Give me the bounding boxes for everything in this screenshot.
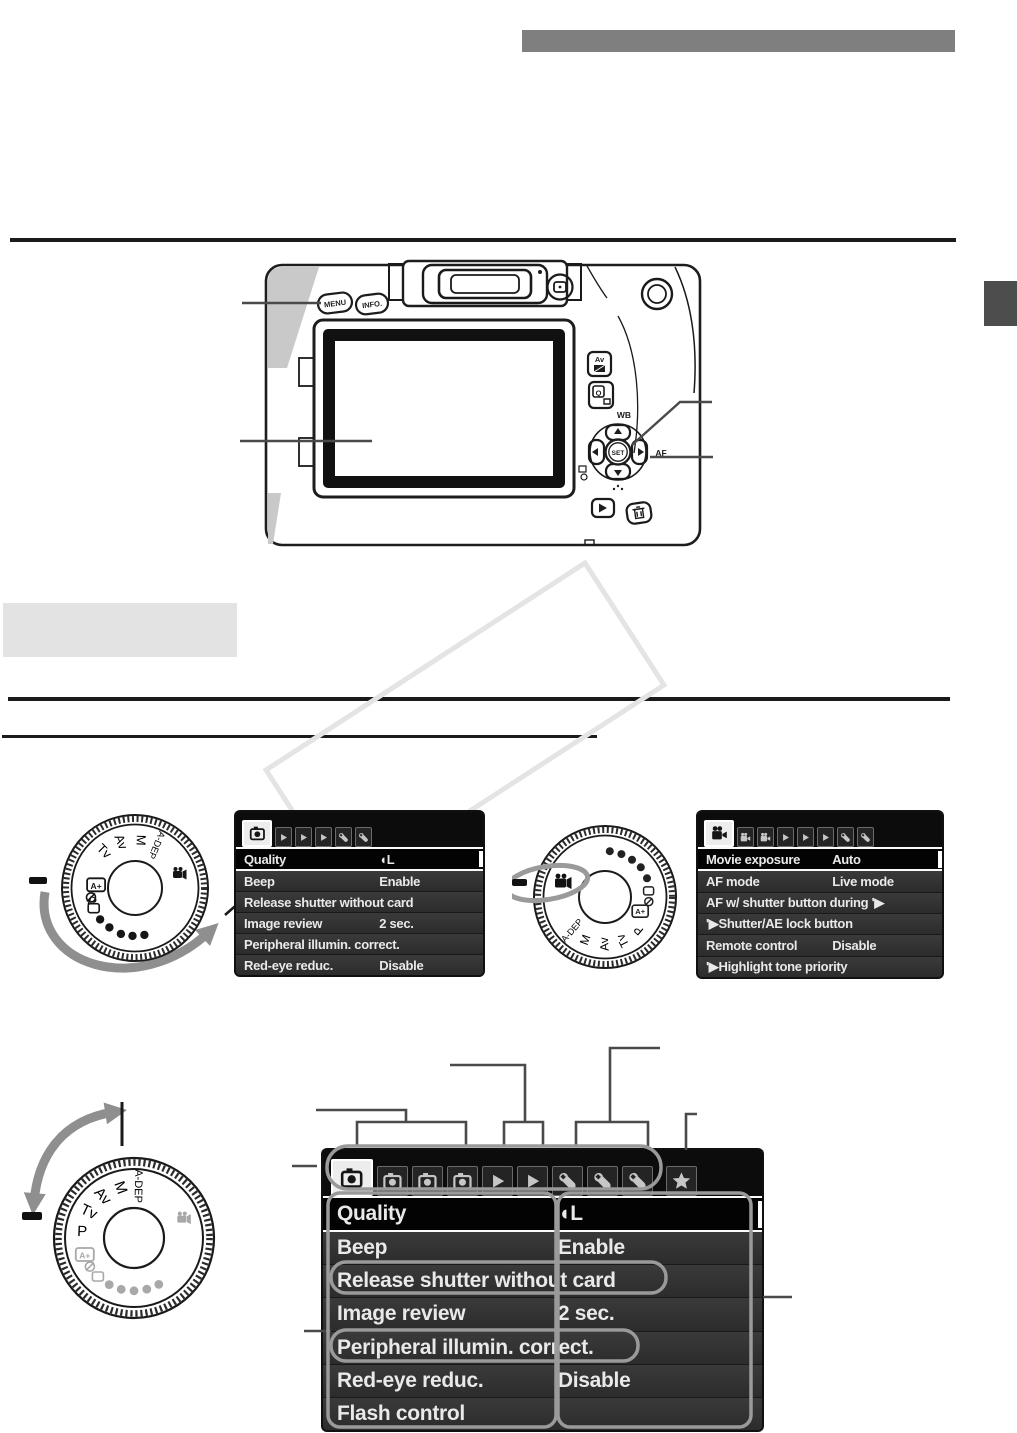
macro-mode-icon (117, 930, 125, 938)
menu-item-value: Enable (379, 874, 420, 889)
menu-tab-bar (236, 812, 483, 847)
svg-text:M: M (134, 834, 149, 845)
menu-tab-playback (315, 827, 332, 847)
svg-text:A+: A+ (79, 1251, 90, 1261)
menu-item-value: ◖L (558, 1202, 583, 1226)
menu-row: '▶Shutter/AE lock button (698, 914, 942, 935)
mode-dial-basic-zone: P Tv Av M A-DEP A+ (25, 793, 257, 1011)
menu-screen-main: Quality◖LBeepEnableRelease shutter witho… (323, 1150, 762, 1430)
svg-text:SET: SET (612, 450, 625, 457)
dial-index-mark (512, 879, 527, 886)
menu-row: Red-eye reduc.Disable (236, 955, 483, 975)
manual-page: MENU INFO. Av (0, 0, 1017, 1433)
menu-item-label: Red-eye reduc. (323, 1369, 483, 1393)
sports-mode-icon (128, 932, 136, 940)
menu-tab-playback (275, 827, 292, 847)
portrait-mode-icon (96, 915, 104, 923)
menu-row: Movie exposureAuto (698, 847, 942, 871)
portrait-mode-icon (643, 874, 651, 882)
menu-row: '▶Highlight tone priority (698, 957, 942, 977)
menu-item-label: Release shutter without card (323, 1269, 616, 1293)
svg-text:Av: Av (595, 355, 605, 364)
menu-item-label: '▶Highlight tone priority (698, 959, 847, 975)
menu-tab-playback (797, 827, 814, 847)
portrait-mode-icon (105, 1280, 114, 1289)
menu-screen-basic-zone: Quality◖LBeepEnableRelease shutter witho… (236, 812, 483, 975)
night-portrait-icon (606, 847, 614, 855)
menu-tab-wrench (335, 827, 352, 847)
menu-item-value: 2 sec. (558, 1302, 615, 1326)
landscape-mode-icon (105, 923, 113, 931)
sports-mode-icon (142, 1285, 151, 1294)
menu-tab-camera (447, 1166, 478, 1196)
menu-item-value: ◖L (379, 852, 394, 867)
lcd-monitor (299, 320, 574, 497)
svg-text:Q: Q (596, 389, 602, 398)
menu-item-label: Beep (236, 874, 275, 889)
menu-tab-playback (482, 1166, 513, 1196)
mode-dial-movie: P Tv Av M A-DEP A+ (512, 810, 710, 990)
menu-row: Peripheral illumin. correct. (323, 1332, 762, 1365)
menu-row: Quality◖L (323, 1196, 762, 1232)
menu-item-value: Enable (558, 1236, 625, 1260)
menu-item-label: Beep (323, 1236, 387, 1260)
macro-mode-icon (130, 1286, 139, 1295)
menu-row: BeepEnable (236, 871, 483, 892)
menu-item-label: Release shutter without card (236, 895, 413, 910)
menu-item-value: Disable (558, 1369, 631, 1393)
menu-row: BeepEnable (323, 1232, 762, 1265)
menu-tab-wrench (587, 1166, 618, 1196)
info-button: INFO. (355, 293, 389, 316)
svg-text:P: P (77, 1223, 88, 1240)
mic-dot (538, 270, 542, 274)
menu-tab-wrench (552, 1166, 583, 1196)
menu-tab-camera-selected (242, 820, 272, 847)
menu-tab-star (666, 1166, 697, 1196)
menu-tab-playback (777, 827, 794, 847)
menu-tab-wrench (622, 1166, 653, 1196)
menu-tab-playback (817, 827, 834, 847)
menu-row: Flash control (323, 1398, 762, 1430)
menu-rows: Quality◖LBeepEnableRelease shutter witho… (323, 1196, 762, 1430)
menu-row: AF modeLive mode (698, 871, 942, 892)
menu-tab-playback (295, 827, 312, 847)
menu-tab-movie-selected (704, 820, 734, 847)
menu-item-label: Peripheral illumin. correct. (323, 1336, 594, 1360)
menu-item-value: Disable (832, 938, 876, 953)
menu-item-label: Image review (323, 1302, 465, 1326)
menu-rows: Movie exposureAutoAF modeLive modeAF w/ … (698, 847, 942, 977)
svg-text:Av: Av (597, 937, 612, 952)
viewfinder (389, 261, 581, 306)
menu-tab-bar (323, 1150, 762, 1196)
night-portrait-icon (154, 1280, 163, 1289)
menu-row: Quality◖L (236, 847, 483, 871)
menu-item-label: Movie exposure (698, 852, 800, 867)
svg-text:A+: A+ (635, 907, 645, 916)
menu-item-label: AF w/ shutter button during '▶ (698, 895, 884, 911)
menu-item-value: Live mode (832, 874, 894, 889)
menu-rows: Quality◖LBeepEnableRelease shutter witho… (236, 847, 483, 975)
menu-screen-movie: Movie exposureAutoAF modeLive modeAF w/ … (698, 812, 942, 977)
menu-item-label: Peripheral illumin. correct. (236, 937, 400, 952)
macro-mode-icon (628, 856, 636, 864)
menu-tab-wrench (355, 827, 372, 847)
menu-item-label: Red-eye reduc. (236, 958, 333, 973)
menu-tab-wrench (837, 827, 854, 847)
menu-row: Release shutter without card (236, 892, 483, 913)
night-portrait-icon (140, 931, 148, 939)
menu-tab-playback (517, 1166, 548, 1196)
menu-item-label: '▶Shutter/AE lock button (698, 916, 853, 932)
menu-item-label: Image review (236, 916, 322, 931)
menu-item-label: Quality (236, 852, 286, 867)
menu-tab-movie (737, 827, 754, 847)
menu-item-label: AF mode (698, 874, 760, 889)
svg-text:A+: A+ (91, 881, 102, 891)
menu-row: Release shutter without card (323, 1265, 762, 1298)
menu-tab-camera-selected (331, 1159, 373, 1196)
menu-button: MENU (317, 291, 353, 314)
menu-tab-camera (412, 1166, 443, 1196)
camera-back-diagram: MENU INFO. Av (235, 258, 725, 558)
menu-item-value: 2 sec. (379, 916, 413, 931)
wb-label: WB (617, 410, 631, 420)
dial-index-mark (22, 1212, 42, 1220)
menu-item-label: Quality (323, 1202, 406, 1226)
menu-row: AF w/ shutter button during '▶ (698, 893, 942, 914)
menu-item-label: Flash control (323, 1402, 465, 1426)
menu-item-value: Disable (379, 958, 423, 973)
menu-tab-camera (377, 1166, 408, 1196)
menu-row: Red-eye reduc.Disable (323, 1365, 762, 1398)
dial-index-mark (29, 877, 47, 884)
landscape-mode-icon (637, 863, 645, 871)
menu-item-value: Auto (832, 852, 860, 867)
landscape-mode-icon (117, 1285, 126, 1294)
menu-tab-movie (757, 827, 774, 847)
menu-row: Peripheral illumin. correct. (236, 934, 483, 955)
menu-row: Image review2 sec. (323, 1298, 762, 1331)
menu-row: Image review2 sec. (236, 913, 483, 934)
menu-tab-bar (698, 812, 942, 847)
menu-item-label: Remote control (698, 938, 797, 953)
sports-mode-icon (617, 850, 625, 858)
menu-row: Remote controlDisable (698, 935, 942, 956)
menu-tab-wrench (857, 827, 874, 847)
svg-text:A-DEP: A-DEP (132, 1169, 145, 1203)
mode-dial-creative-zone: P Tv Av M A-DEP A+ (12, 1096, 260, 1336)
